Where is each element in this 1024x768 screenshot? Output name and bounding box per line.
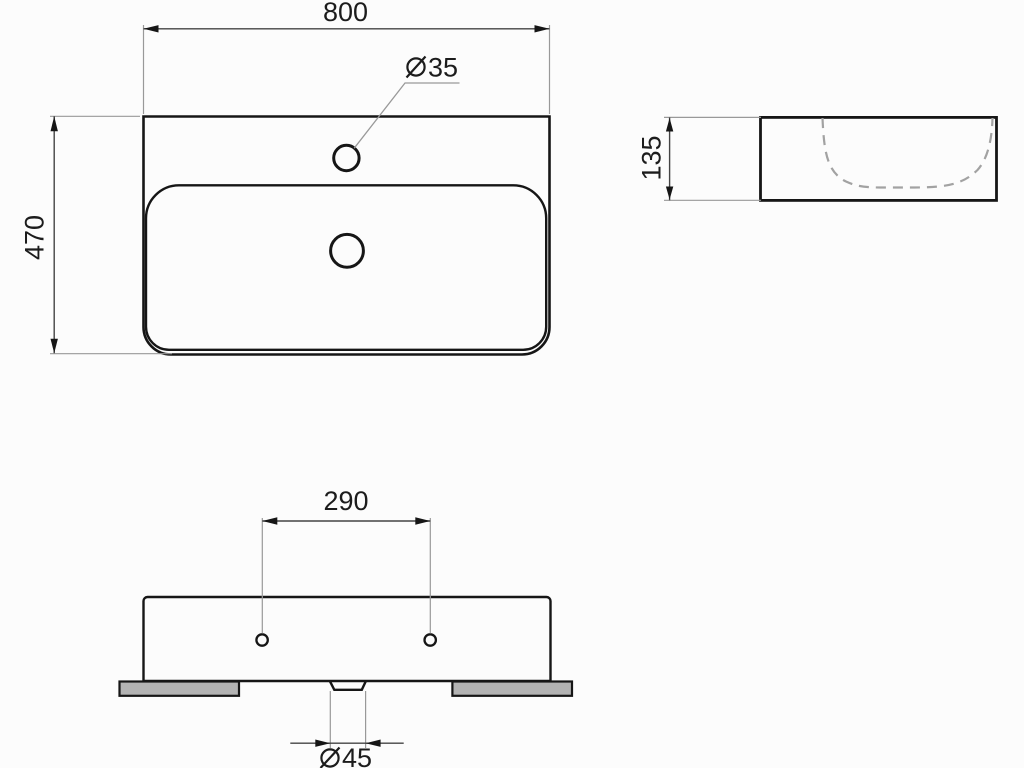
svg-text:800: 800 [323, 0, 368, 27]
svg-text:470: 470 [19, 215, 49, 260]
svg-text:290: 290 [323, 486, 368, 516]
svg-text:45: 45 [342, 743, 372, 768]
svg-text:135: 135 [636, 135, 666, 180]
svg-text:35: 35 [428, 53, 458, 83]
